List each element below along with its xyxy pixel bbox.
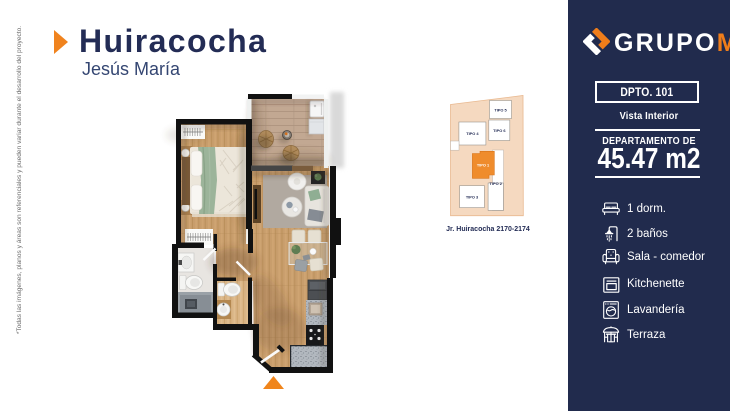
svg-text:TIPO 6: TIPO 6	[493, 128, 506, 133]
svg-text:TIPO 2: TIPO 2	[490, 181, 503, 186]
svg-text:TIPO 3: TIPO 3	[466, 195, 479, 200]
svg-text:TIPO 5: TIPO 5	[494, 108, 507, 113]
svg-text:TIPO 1: TIPO 1	[477, 163, 490, 168]
svg-text:TIPO 4: TIPO 4	[466, 131, 479, 136]
